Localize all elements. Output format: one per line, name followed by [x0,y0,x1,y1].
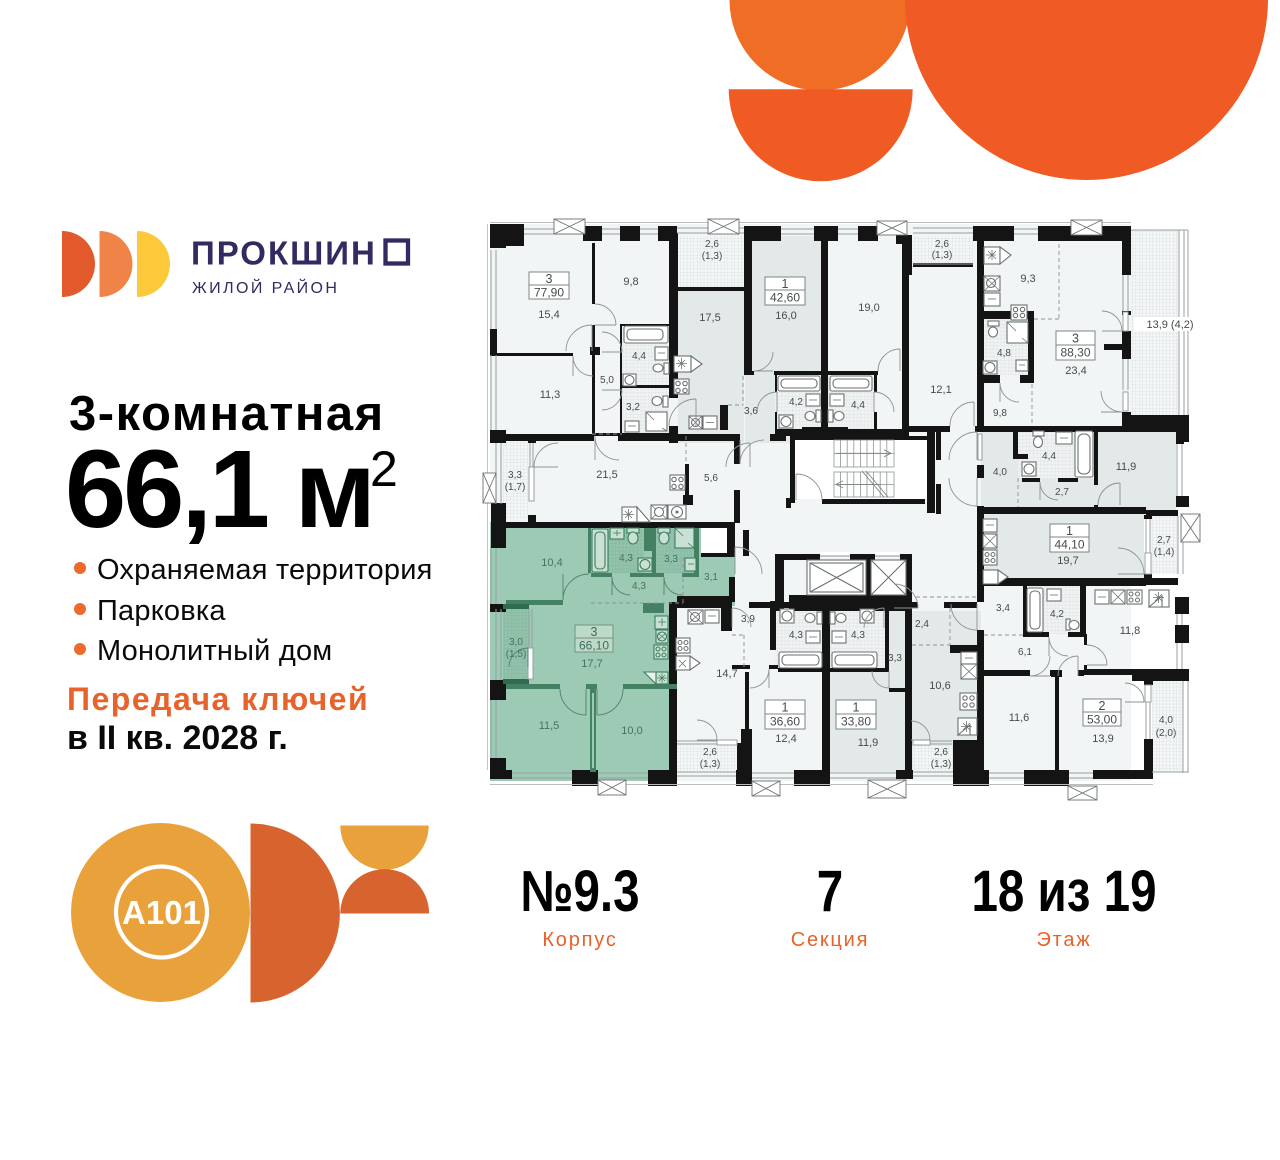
svg-text:2,7: 2,7 [1157,535,1171,546]
svg-text:2: 2 [1099,699,1106,713]
svg-text:10,6: 10,6 [929,680,950,692]
svg-text:1: 1 [782,277,789,291]
svg-text:6,1: 6,1 [1018,647,1032,658]
svg-text:4,3: 4,3 [619,553,633,564]
svg-text:19,7: 19,7 [1057,555,1078,567]
svg-text:11,8: 11,8 [1120,625,1141,637]
svg-text:13,9 (4,2): 13,9 (4,2) [1146,319,1193,331]
svg-text:4,4: 4,4 [1042,451,1056,462]
svg-text:3,1: 3,1 [704,572,718,583]
svg-text:4,0: 4,0 [993,467,1007,478]
svg-text:2,6: 2,6 [703,747,717,758]
svg-text:11,9: 11,9 [1116,461,1137,473]
svg-text:2,4: 2,4 [915,619,929,630]
svg-text:(1,3): (1,3) [700,759,721,770]
svg-text:(1,4): (1,4) [1154,547,1175,558]
svg-text:21,5: 21,5 [596,469,617,481]
svg-text:66,10: 66,10 [579,639,609,653]
svg-text:3,4: 3,4 [996,603,1010,614]
svg-text:4,2: 4,2 [1050,609,1064,620]
svg-text:1: 1 [782,701,789,715]
svg-text:(1,3): (1,3) [931,759,952,770]
svg-text:13,9: 13,9 [1092,733,1113,745]
svg-text:4,3: 4,3 [632,581,646,592]
svg-text:4,0: 4,0 [1159,715,1173,726]
svg-text:77,90: 77,90 [534,286,564,300]
svg-text:11,9: 11,9 [858,737,879,749]
svg-text:1: 1 [1066,524,1073,538]
svg-text:1: 1 [853,701,860,715]
svg-text:4,2: 4,2 [789,397,803,408]
svg-text:5,6: 5,6 [704,473,718,484]
svg-text:11,3: 11,3 [540,389,561,401]
svg-text:17,7: 17,7 [581,658,602,670]
svg-text:(2,0): (2,0) [1156,728,1177,739]
svg-text:12,4: 12,4 [775,733,796,745]
svg-text:(1,7): (1,7) [505,482,526,493]
svg-text:23,4: 23,4 [1065,365,1086,377]
svg-text:4,4: 4,4 [851,400,865,411]
svg-text:36,60: 36,60 [770,715,800,729]
svg-text:10,4: 10,4 [541,557,562,569]
svg-text:88,30: 88,30 [1060,346,1090,360]
svg-text:44,10: 44,10 [1054,538,1084,552]
svg-text:2,6: 2,6 [705,239,719,250]
svg-text:2,7: 2,7 [1055,487,1069,498]
svg-text:3,3: 3,3 [888,653,902,664]
svg-text:(1,3): (1,3) [932,250,953,261]
svg-text:3,3: 3,3 [664,554,678,565]
svg-text:16,0: 16,0 [775,310,796,322]
svg-text:4,8: 4,8 [997,348,1011,359]
svg-text:(1,5): (1,5) [506,649,527,660]
svg-text:3: 3 [591,625,598,639]
svg-text:15,4: 15,4 [538,309,559,321]
svg-text:4,3: 4,3 [851,630,865,641]
svg-text:4,3: 4,3 [789,630,803,641]
svg-text:33,80: 33,80 [841,715,871,729]
svg-text:9,8: 9,8 [993,408,1007,419]
svg-text:19,0: 19,0 [858,302,879,314]
svg-text:2,6: 2,6 [934,747,948,758]
svg-text:42,60: 42,60 [770,291,800,305]
svg-text:ЖИЛОЙ РАЙОН: ЖИЛОЙ РАЙОН [192,278,339,297]
svg-text:3: 3 [546,272,553,286]
svg-text:53,00: 53,00 [1087,713,1117,727]
svg-text:(1,3): (1,3) [702,251,723,262]
svg-text:11,6: 11,6 [1009,712,1030,724]
svg-text:4,4: 4,4 [632,351,646,362]
svg-text:ПРОКШИН: ПРОКШИН [191,235,377,272]
svg-text:17,5: 17,5 [699,312,720,324]
svg-text:3,9: 3,9 [741,614,755,625]
svg-text:3,6: 3,6 [744,406,758,417]
svg-text:3,0: 3,0 [509,637,523,648]
svg-text:3: 3 [1072,332,1079,346]
svg-text:12,1: 12,1 [930,384,951,396]
svg-text:9,8: 9,8 [623,276,638,288]
svg-text:14,7: 14,7 [716,668,737,680]
svg-text:3,3: 3,3 [508,470,522,481]
svg-text:3,2: 3,2 [626,402,640,413]
svg-text:A101: A101 [122,894,201,931]
svg-text:2,6: 2,6 [935,239,949,250]
svg-text:10,0: 10,0 [621,725,642,737]
svg-text:9,3: 9,3 [1020,273,1035,285]
svg-text:11,5: 11,5 [539,720,560,732]
svg-text:5,0: 5,0 [600,375,614,386]
